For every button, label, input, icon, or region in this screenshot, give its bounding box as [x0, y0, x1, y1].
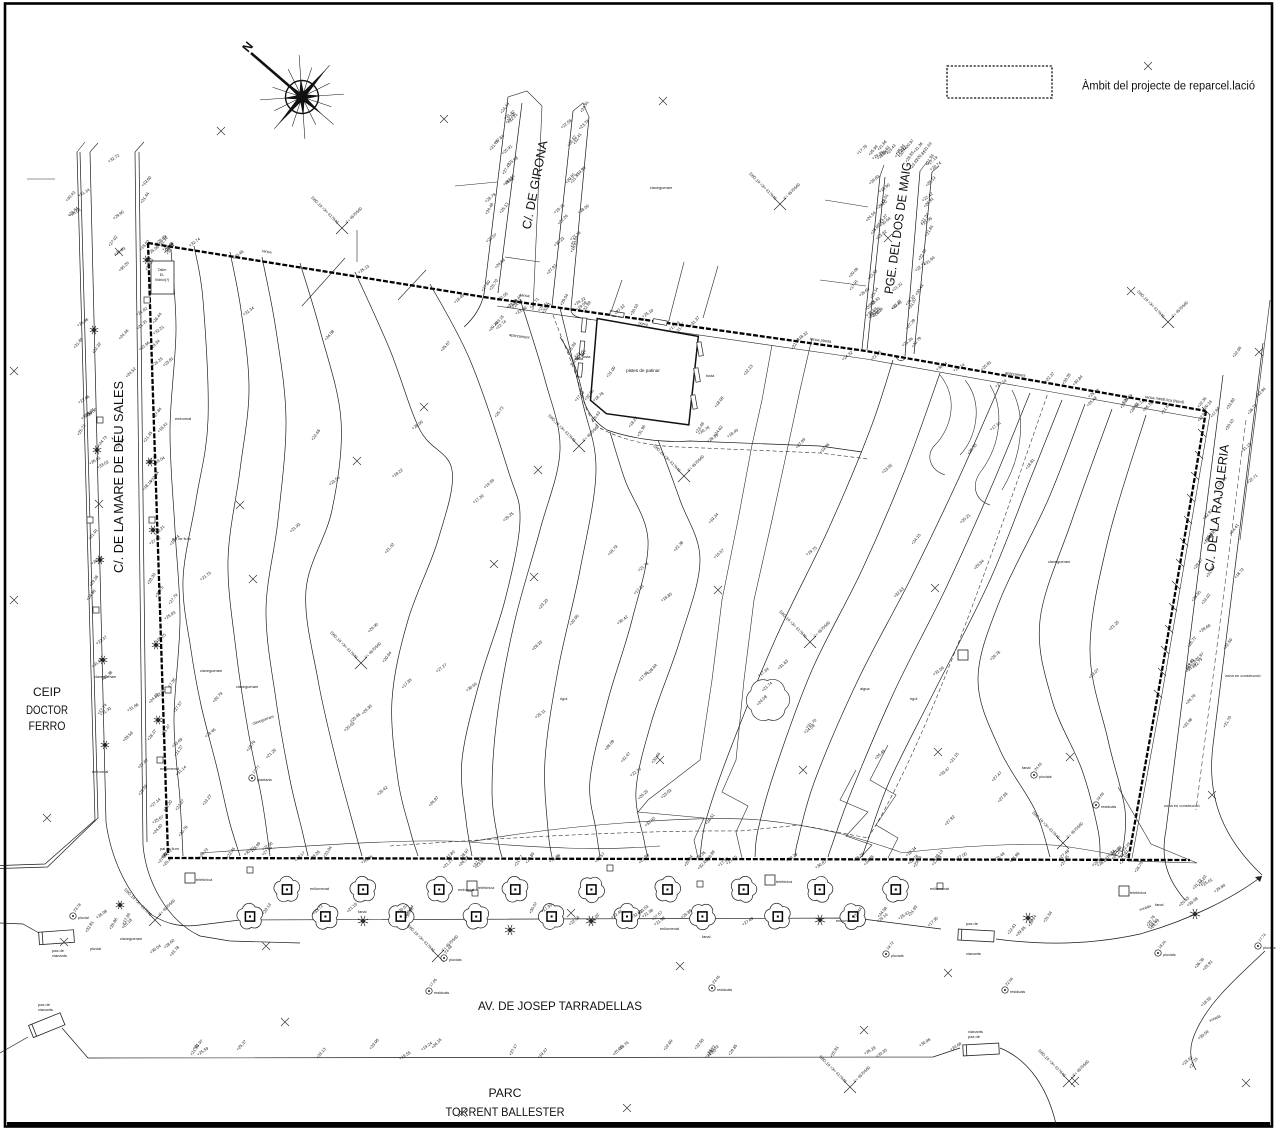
svg-text:+31.54: +31.54	[1042, 910, 1054, 924]
svg-text:+20.04: +20.04	[683, 853, 694, 867]
svg-text:+21.31: +21.31	[135, 318, 148, 331]
svg-text:+23.53: +23.53	[866, 268, 879, 281]
svg-text:+27.65: +27.65	[996, 790, 1009, 803]
svg-text:+29.68: +29.68	[493, 257, 506, 270]
svg-text:+32.50: +32.50	[1222, 637, 1234, 651]
svg-text:17.74: 17.74	[1258, 933, 1267, 943]
svg-text:+30.23: +30.23	[552, 235, 565, 248]
svg-text:+21.76: +21.76	[636, 560, 650, 572]
svg-text:pal de llum: pal de llum	[172, 536, 191, 541]
svg-text:+33.04: +33.04	[322, 845, 334, 859]
svg-text:fusta: fusta	[706, 374, 715, 378]
svg-text:+31.86: +31.86	[126, 702, 140, 713]
svg-text:+20.79: +20.79	[910, 335, 923, 348]
svg-text:+23.37: +23.37	[174, 798, 186, 812]
svg-text:+20.94: +20.94	[381, 650, 393, 664]
svg-text:+26.08: +26.08	[95, 908, 109, 920]
svg-text:17.05: 17.05	[429, 978, 438, 988]
svg-text:+32.32: +32.32	[91, 341, 103, 355]
svg-text:+23.55: +23.55	[880, 462, 893, 475]
svg-text:D6G,19 =X= 417940: D6G,19 =X= 417940	[652, 443, 682, 473]
svg-text:+30.96: +30.96	[918, 1036, 932, 1047]
svg-text:+29.17: +29.17	[293, 850, 306, 863]
svg-text:enllumenat: enllumenat	[836, 918, 856, 923]
svg-text:+30.21: +30.21	[153, 524, 166, 537]
svg-text:+21.14: +21.14	[77, 187, 91, 198]
svg-text:clavegueram: clavegueram	[650, 185, 672, 190]
svg-text:enllumenat: enllumenat	[160, 766, 180, 771]
svg-text:+26.79: +26.79	[1184, 693, 1197, 706]
svg-text:D6G,19 =X= 417940: D6G,19 =X= 417940	[1031, 810, 1061, 840]
svg-text:+28.33: +28.33	[530, 639, 543, 652]
svg-text:24.66: 24.66	[1034, 762, 1043, 772]
svg-text:Y= 4570560: Y= 4570560	[782, 181, 801, 200]
svg-text:vianants: vianants	[966, 951, 981, 956]
svg-text:+25.67: +25.67	[439, 339, 452, 352]
svg-text:+28.79: +28.79	[785, 851, 799, 863]
svg-text:D6G,19 =X= 417940: D6G,19 =X= 417940	[818, 1054, 848, 1084]
svg-text:+18.90: +18.90	[878, 182, 892, 194]
svg-text:+32.50: +32.50	[693, 1037, 705, 1051]
svg-text:+22.37: +22.37	[1043, 370, 1056, 383]
svg-text:+33.80: +33.80	[1225, 397, 1237, 411]
svg-text:+30.66: +30.66	[650, 751, 662, 765]
svg-text:enllumenat: enllumenat	[930, 886, 950, 891]
svg-text:+20.21: +20.21	[958, 512, 971, 525]
svg-text:CEIP: CEIP	[33, 685, 61, 699]
svg-text:+26.49: +26.49	[873, 748, 886, 761]
svg-text:fusta: fusta	[582, 354, 591, 359]
svg-text:+30.84: +30.84	[1071, 374, 1084, 387]
svg-text:+19.24: +19.24	[707, 511, 720, 524]
svg-text:fanal: fanal	[1022, 765, 1031, 770]
svg-text:+17.35: +17.35	[926, 915, 939, 928]
svg-text:23.45: 23.45	[712, 975, 721, 985]
svg-text:vianants: vianants	[38, 1007, 53, 1012]
svg-text:+27.87: +27.87	[136, 757, 149, 770]
svg-text:+21.25: +21.25	[1107, 619, 1120, 632]
svg-text:D6G,19 =X= 417940: D6G,19 =X= 417940	[329, 630, 359, 660]
svg-text:+24.09: +24.09	[803, 723, 817, 735]
svg-text:+30.20: +30.20	[117, 260, 130, 273]
svg-text:+27.27: +27.27	[435, 662, 449, 674]
svg-text:vianants: vianants	[968, 1029, 983, 1034]
svg-text:+26.87: +26.87	[427, 794, 440, 807]
svg-text:+24.86: +24.86	[85, 588, 97, 602]
svg-text:D6G,19 =X= 417940: D6G,19 =X= 417940	[547, 413, 577, 443]
svg-text:residuals: residuals	[434, 991, 449, 995]
svg-text:PARC: PARC	[489, 1086, 522, 1100]
svg-text:Y= 4570560: Y= 4570560	[363, 640, 382, 659]
svg-text:fanal: fanal	[358, 909, 367, 914]
svg-text:+25.73: +25.73	[493, 405, 505, 419]
svg-text:+18.76: +18.76	[245, 739, 257, 753]
svg-text:+28.09: +28.09	[603, 738, 616, 751]
svg-text:Vidriol(?): Vidriol(?)	[155, 278, 169, 282]
svg-text:+29.85: +29.85	[727, 1043, 739, 1057]
svg-text:+24.15: +24.15	[910, 532, 922, 546]
svg-text:+28.58: +28.58	[121, 730, 134, 743]
svg-text:+31.44: +31.44	[139, 191, 151, 205]
svg-text:+19.78: +19.78	[552, 202, 566, 215]
svg-text:telefònica: telefònica	[1130, 891, 1147, 895]
svg-text:+28.24: +28.24	[1027, 913, 1038, 927]
svg-text:tanca planta: tanca planta	[810, 336, 833, 344]
svg-text:+30.42: +30.42	[616, 614, 630, 626]
svg-text:+23.20: +23.20	[537, 597, 550, 611]
svg-text:telefònica: telefònica	[776, 880, 793, 884]
svg-text:+20.03: +20.03	[342, 720, 355, 733]
svg-text:+25.11: +25.11	[534, 708, 547, 720]
svg-text:fanal: fanal	[1155, 902, 1164, 907]
svg-text:pluvials: pluvials	[1163, 953, 1176, 957]
svg-text:+22.60: +22.60	[662, 1038, 674, 1052]
svg-text:+31.53: +31.53	[921, 140, 933, 153]
svg-text:Y= 4570560: Y= 4570560	[1170, 299, 1189, 318]
svg-text:+21.77: +21.77	[513, 854, 525, 868]
svg-text:+26.96: +26.96	[76, 316, 90, 328]
svg-text:telefònica: telefònica	[478, 886, 495, 890]
svg-text:+20.53: +20.53	[629, 302, 640, 316]
svg-text:+19.55: +19.55	[398, 1050, 412, 1061]
svg-text:+33.02: +33.02	[1200, 592, 1212, 606]
svg-text:+19.59: +19.59	[482, 477, 495, 490]
svg-text:+25.63: +25.63	[590, 410, 602, 424]
svg-text:+33.00: +33.00	[368, 1037, 380, 1051]
svg-text:19.69: 19.69	[1096, 792, 1105, 802]
svg-text:+27.14: +27.14	[994, 378, 1008, 389]
svg-text:residuals: residuals	[717, 988, 732, 992]
svg-text:+22.75: +22.75	[154, 584, 165, 598]
svg-text:+20.79: +20.79	[211, 690, 224, 703]
svg-text:+23.03: +23.03	[659, 787, 672, 800]
svg-text:embornal: embornal	[92, 769, 108, 774]
svg-text:+28.46: +28.46	[203, 726, 217, 738]
svg-text:+28.00: +28.00	[411, 419, 425, 431]
svg-text:pluvials: pluvials	[1039, 775, 1052, 779]
svg-text:+31.34: +31.34	[242, 305, 256, 317]
svg-text:+22.23: +22.23	[869, 349, 882, 362]
svg-text:pas de: pas de	[968, 1034, 981, 1039]
svg-text:+30.24: +30.24	[935, 360, 949, 372]
svg-text:+29.25: +29.25	[501, 510, 515, 522]
svg-text:+33.78: +33.78	[168, 944, 181, 957]
svg-text:+27.92: +27.92	[943, 814, 956, 827]
svg-text:+24.41: +24.41	[1228, 522, 1240, 536]
svg-text:23.78: 23.78	[73, 903, 82, 913]
svg-text:+21.79: +21.79	[199, 570, 213, 582]
svg-text:+27.47: +27.47	[990, 770, 1003, 783]
svg-text:+26.25: +26.25	[636, 788, 649, 801]
svg-text:+18.85: +18.85	[660, 591, 674, 603]
svg-text:+28.64: +28.64	[646, 662, 659, 676]
svg-text:+21.93: +21.93	[288, 521, 301, 534]
svg-text:embornal: embornal	[458, 887, 474, 892]
svg-text:+31.94: +31.94	[923, 255, 937, 267]
svg-text:+29.80: +29.80	[1213, 882, 1227, 894]
svg-text:+25.98: +25.98	[506, 155, 520, 167]
svg-text:EL: EL	[160, 273, 164, 277]
svg-text:+31.93: +31.93	[907, 904, 919, 918]
svg-text:clavegueram: clavegueram	[94, 674, 116, 679]
svg-text:+33.27: +33.27	[201, 793, 213, 807]
svg-text:pistes de patinar: pistes de patinar	[626, 368, 660, 373]
svg-text:residuals: residuals	[1101, 805, 1116, 809]
svg-text:pluvials: pluvials	[891, 954, 904, 958]
svg-text:aparcament: aparcament	[509, 332, 531, 340]
svg-text:residuals: residuals	[1010, 990, 1025, 994]
svg-text:+20.10: +20.10	[1224, 417, 1235, 431]
svg-text:+29.90: +29.90	[366, 621, 379, 634]
svg-text:rigol: rigol	[910, 696, 917, 701]
svg-text:N: N	[240, 39, 257, 55]
svg-text:+29.30: +29.30	[966, 442, 978, 456]
svg-text:+20.90: +20.90	[568, 613, 580, 627]
svg-text:+28.26: +28.26	[308, 849, 321, 862]
svg-text:+27.14: +27.14	[148, 796, 162, 808]
svg-text:pluvial: pluvial	[90, 946, 101, 951]
svg-text:+30.66: +30.66	[465, 681, 479, 693]
svg-text:vorada: vorada	[1139, 903, 1153, 912]
svg-text:+22.49: +22.49	[993, 850, 1007, 862]
svg-text:+23.54: +23.54	[328, 475, 342, 487]
svg-text:+24.58: +24.58	[323, 328, 336, 341]
svg-text:+17.51: +17.51	[989, 420, 1003, 432]
svg-text:D6G,19 =X= 417940: D6G,19 =X= 417940	[310, 195, 340, 225]
svg-text:+22.06: +22.06	[1231, 345, 1243, 359]
svg-text:+29.89: +29.89	[524, 851, 536, 865]
svg-text:+20.76: +20.76	[177, 824, 189, 838]
svg-text:+26.78: +26.78	[988, 649, 1001, 662]
svg-text:+20.13: +20.13	[261, 902, 273, 916]
svg-text:Y= 4570560: Y= 4570560	[852, 1064, 871, 1083]
svg-text:+27.79: +27.79	[167, 592, 179, 606]
svg-text:+29.94: +29.94	[972, 558, 985, 571]
svg-text:+29.04: +29.04	[559, 292, 570, 306]
svg-text:+30.04: +30.04	[1197, 1028, 1211, 1040]
svg-text:Y= 4570560: Y= 4570560	[581, 423, 600, 442]
svg-text:fanal: fanal	[702, 934, 711, 939]
svg-text:+21.16: +21.16	[345, 901, 358, 914]
svg-text:+27.69: +27.69	[741, 915, 755, 927]
svg-text:Y= 4570560: Y= 4570560	[157, 897, 176, 916]
svg-text:tanca: tanca	[262, 248, 273, 255]
svg-text:+33.48: +33.48	[1181, 716, 1194, 729]
svg-text:18.24: 18.24	[1158, 940, 1167, 950]
svg-text:+32.81: +32.81	[84, 919, 95, 933]
svg-text:+24.91: +24.91	[579, 99, 590, 113]
svg-text:+29.90: +29.90	[112, 209, 126, 221]
svg-text:+27.39: +27.39	[904, 317, 917, 330]
svg-text:+31.37: +31.37	[160, 723, 172, 737]
svg-text:22.59: 22.59	[1005, 977, 1014, 987]
svg-text:+18.79: +18.79	[606, 543, 619, 556]
svg-text:+32.41: +32.41	[572, 131, 583, 145]
svg-text:pal de llum: pal de llum	[160, 846, 179, 851]
svg-text:+27.02: +27.02	[107, 234, 119, 248]
svg-text:+32.92: +32.92	[643, 815, 656, 828]
svg-text:Y= 4570560: Y= 4570560	[1071, 1058, 1090, 1077]
svg-text:+24.60: +24.60	[949, 1041, 963, 1052]
svg-text:+25.67: +25.67	[151, 814, 165, 825]
svg-text:+27.57: +27.57	[172, 700, 184, 714]
svg-text:+25.13: +25.13	[357, 263, 371, 275]
svg-text:clavegueram: clavegueram	[252, 714, 275, 726]
svg-text:+18.32: +18.32	[796, 330, 810, 342]
svg-text:+27.99: +27.99	[794, 436, 807, 449]
svg-text:+25.98: +25.98	[1008, 850, 1021, 863]
svg-text:+26.75: +26.75	[1133, 860, 1145, 874]
svg-text:+18.41: +18.41	[156, 420, 169, 433]
svg-text:+32.21: +32.21	[152, 324, 166, 336]
svg-text:Y= 4570560: Y= 4570560	[1065, 820, 1084, 839]
svg-text:+22.23: +22.23	[742, 363, 754, 377]
svg-text:+29.38: +29.38	[88, 574, 100, 588]
svg-text:+22.68: +22.68	[310, 428, 322, 442]
svg-text:+21.01: +21.01	[87, 527, 99, 541]
svg-text:PGE. DEL DOS DE MAIG: PGE. DEL DOS DE MAIG	[882, 161, 914, 295]
svg-text:+25.70: +25.70	[488, 278, 500, 292]
svg-text:+26.44: +26.44	[151, 311, 163, 325]
svg-text:+28.06: +28.06	[577, 203, 591, 215]
svg-text:embornal: embornal	[175, 416, 191, 421]
svg-text:+25.93: +25.93	[163, 609, 177, 620]
svg-text:+24.32: +24.32	[840, 349, 854, 361]
svg-text:+24.46: +24.46	[117, 327, 130, 340]
svg-text:D6G,19 =X= 417940: D6G,19 =X= 417940	[406, 923, 436, 953]
svg-text:D6G,19 =X= 417940: D6G,19 =X= 417940	[748, 171, 778, 201]
svg-text:pluvial: pluvial	[78, 916, 89, 920]
svg-text:+23.81: +23.81	[161, 355, 175, 367]
svg-text:+22.38: +22.38	[672, 539, 685, 552]
svg-text:+17.30: +17.30	[472, 493, 486, 505]
svg-text:DOCTOR: DOCTOR	[26, 703, 68, 717]
svg-text:+17.35: +17.35	[400, 677, 413, 690]
svg-text:+26.42: +26.42	[375, 784, 389, 796]
svg-text:+22.76: +22.76	[629, 766, 643, 778]
svg-text:aigua: aigua	[860, 686, 870, 691]
svg-text:+26.72: +26.72	[1186, 635, 1198, 649]
svg-text:pas de: pas de	[966, 921, 979, 926]
svg-text:enllumenat: enllumenat	[660, 926, 680, 931]
svg-text:+32.72: +32.72	[107, 152, 121, 164]
svg-text:enllumenat: enllumenat	[310, 886, 330, 891]
svg-text:clavegueram: clavegueram	[236, 684, 258, 689]
svg-text:+25.81: +25.81	[979, 359, 992, 372]
svg-text:vianants: vianants	[52, 953, 67, 958]
svg-text:clavegueram: clavegueram	[1048, 559, 1070, 564]
svg-text:+28.68: +28.68	[1198, 622, 1212, 633]
svg-text:C/. DE GIRONA: C/. DE GIRONA	[520, 139, 551, 231]
svg-text:+18.55: +18.55	[1199, 995, 1212, 1008]
svg-text:+32.74: +32.74	[188, 236, 202, 248]
svg-text:telefònica: telefònica	[196, 878, 213, 882]
svg-text:+20.06: +20.06	[847, 266, 860, 279]
svg-text:Àmbit del projecte de reparcel: Àmbit del projecte de reparcel.lació	[1082, 80, 1255, 93]
svg-text:Y= 4570560: Y= 4570560	[686, 453, 705, 472]
svg-text:+21.70: +21.70	[1222, 714, 1233, 728]
svg-text:+25.71: +25.71	[76, 422, 87, 436]
svg-text:clavegueram: clavegueram	[120, 936, 142, 941]
svg-text:+26.04: +26.04	[68, 207, 82, 218]
svg-text:19.72: 19.72	[886, 941, 895, 951]
svg-text:+31.63: +31.63	[776, 658, 789, 671]
svg-text:+18.08: +18.08	[713, 395, 725, 409]
svg-text:+24.73: +24.73	[96, 434, 109, 447]
svg-text:AV. DE JOSEP TARRADELLAS: AV. DE JOSEP TARRADELLAS	[478, 999, 642, 1013]
svg-text:zona en construcció: zona en construcció	[1225, 673, 1261, 678]
svg-text:pluvials: pluvials	[1263, 946, 1276, 950]
svg-text:+19.96: +19.96	[818, 441, 831, 454]
svg-text:Y= 4570560: Y= 4570560	[344, 205, 363, 224]
svg-text:+22.56: +22.56	[567, 914, 580, 927]
svg-text:+21.63: +21.63	[113, 245, 127, 257]
svg-text:+17.64: +17.64	[757, 666, 771, 678]
svg-text:pluvials: pluvials	[449, 958, 462, 962]
svg-text:C/. DE LA MARE DE DÉU SALES: C/. DE LA MARE DE DÉU SALES	[111, 381, 126, 573]
svg-text:+21.15: +21.15	[948, 751, 960, 765]
svg-text:FERRO: FERRO	[29, 719, 66, 733]
svg-text:rigol: rigol	[560, 696, 567, 701]
svg-text:+21.26: +21.26	[264, 747, 277, 760]
svg-text:+23.07: +23.07	[1087, 667, 1100, 680]
svg-text:+25.37: +25.37	[235, 1038, 248, 1051]
svg-text:+20.57: +20.57	[593, 851, 606, 864]
svg-text:+25.81: +25.81	[829, 1044, 840, 1058]
svg-text:+30.07: +30.07	[528, 900, 539, 914]
svg-text:clavegueram: clavegueram	[200, 668, 222, 673]
svg-text:+22.26: +22.26	[556, 213, 569, 226]
svg-text:D6G,19 =X= 417940: D6G,19 =X= 417940	[778, 609, 808, 639]
svg-text:D6G,19 =X= 417940: D6G,19 =X= 417940	[1136, 289, 1166, 319]
svg-text:+24.52: +24.52	[124, 366, 137, 379]
svg-text:+18.49: +18.49	[726, 427, 740, 439]
svg-text:+28.30: +28.30	[146, 571, 157, 585]
svg-text:+21.35: +21.35	[142, 430, 154, 444]
svg-text:+30.44: +30.44	[914, 283, 926, 297]
svg-text:+31.09: +31.09	[932, 665, 946, 677]
svg-text:+29.30: +29.30	[360, 703, 373, 716]
svg-text:17.77: 17.77	[252, 765, 261, 775]
svg-text:+22.71: +22.71	[1245, 472, 1259, 484]
svg-text:D6G,19 =X= 417940: D6G,19 =X= 417940	[1037, 1048, 1067, 1078]
svg-text:+30.04: +30.04	[149, 943, 163, 955]
svg-text:+21.02: +21.02	[383, 541, 396, 554]
svg-text:+26.86: +26.86	[108, 916, 119, 930]
svg-text:Taller: Taller	[158, 268, 167, 272]
svg-text:+28.37: +28.37	[146, 728, 158, 742]
svg-text:plantada: plantada	[257, 778, 272, 782]
svg-text:+32.94: +32.94	[1254, 386, 1267, 399]
svg-text:vorada: vorada	[1208, 1013, 1222, 1023]
svg-text:zona en construcció: zona en construcció	[1164, 803, 1200, 808]
svg-text:+19.60: +19.60	[140, 174, 153, 187]
svg-text:+32.47: +32.47	[619, 750, 632, 763]
svg-text:+23.07: +23.07	[485, 232, 499, 244]
svg-text:+21.81: +21.81	[924, 223, 935, 237]
svg-text:+30.43: +30.43	[64, 189, 77, 202]
svg-text:+27.17: +27.17	[508, 1042, 519, 1056]
svg-text:+18.22: +18.22	[391, 467, 405, 479]
svg-text:+33.47: +33.47	[938, 765, 952, 777]
svg-text:+19.57: +19.57	[712, 547, 725, 560]
svg-text:+31.96: +31.96	[636, 423, 647, 437]
